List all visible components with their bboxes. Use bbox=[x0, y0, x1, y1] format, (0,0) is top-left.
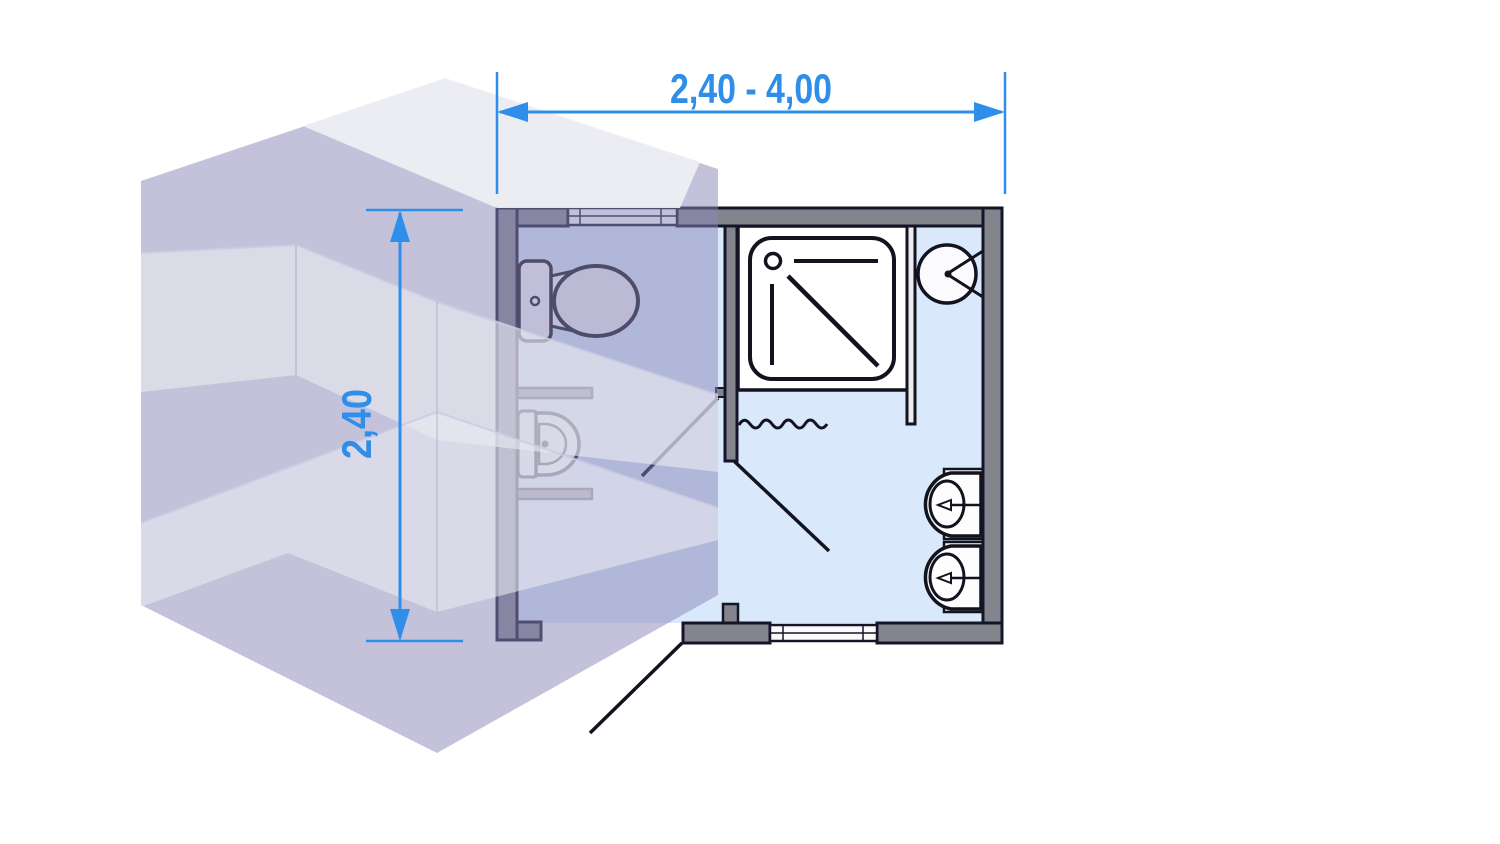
diagram-stage: 2,40 - 4,00 2,40 bbox=[0, 0, 1500, 844]
width-dimension-label: 2,40 - 4,00 bbox=[670, 65, 832, 112]
window-bottom-icon bbox=[770, 625, 877, 641]
bottom-wall-left bbox=[683, 623, 770, 643]
isometric-module bbox=[141, 78, 718, 753]
right-wall bbox=[983, 208, 1002, 643]
shower-drain-icon bbox=[766, 254, 781, 269]
bottom-wall-right bbox=[877, 623, 1002, 643]
depth-dimension-label: 2,40 bbox=[333, 389, 380, 459]
shower-tray-icon bbox=[738, 226, 908, 390]
arrowhead-right-icon bbox=[974, 102, 1005, 122]
shower-partition-wall bbox=[907, 226, 915, 424]
bathroom-diagram: 2,40 - 4,00 2,40 bbox=[0, 0, 1500, 844]
bottom-door-stop-tab bbox=[723, 604, 738, 624]
top-wall-right bbox=[677, 208, 1002, 226]
central-wall bbox=[725, 226, 737, 461]
